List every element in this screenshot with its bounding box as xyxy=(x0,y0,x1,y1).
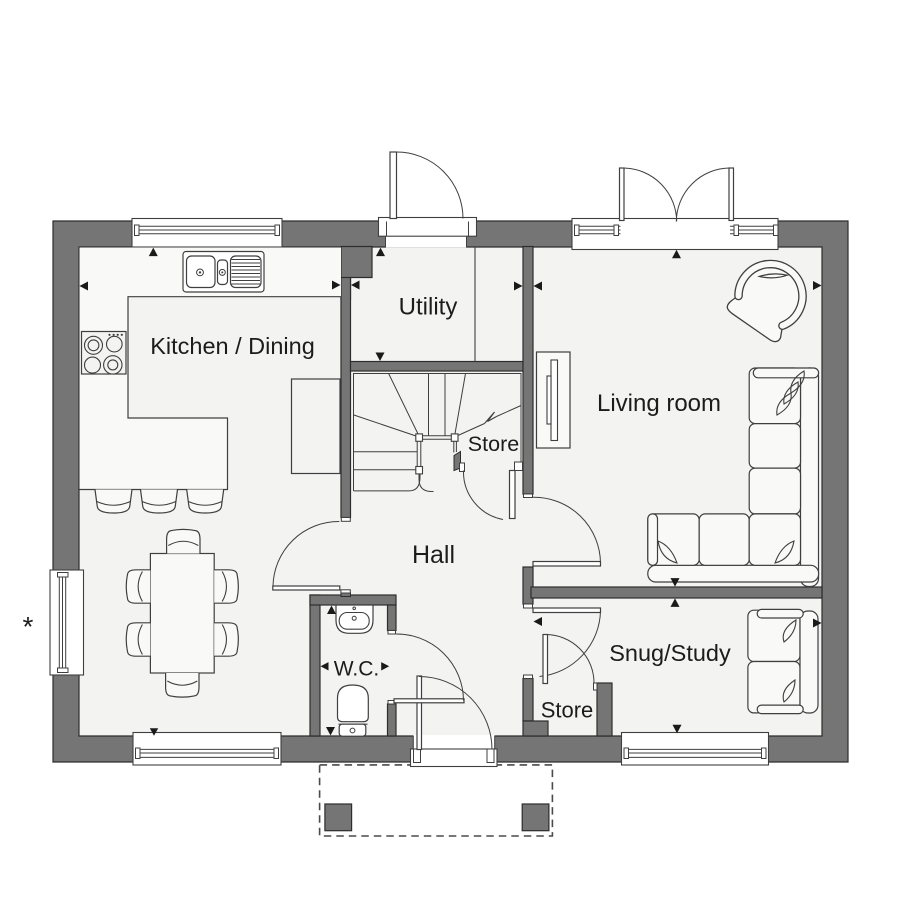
svg-text:Snug/Study: Snug/Study xyxy=(609,640,731,666)
svg-text:Kitchen / Dining: Kitchen / Dining xyxy=(150,333,315,359)
svg-text:Store: Store xyxy=(541,698,594,723)
svg-text:Store: Store xyxy=(468,432,519,456)
svg-text:W.C.: W.C. xyxy=(334,658,380,681)
svg-text:Utility: Utility xyxy=(399,294,458,321)
svg-text:Living room: Living room xyxy=(597,390,721,417)
svg-text:*: * xyxy=(23,611,34,642)
svg-text:Hall: Hall xyxy=(412,541,455,569)
